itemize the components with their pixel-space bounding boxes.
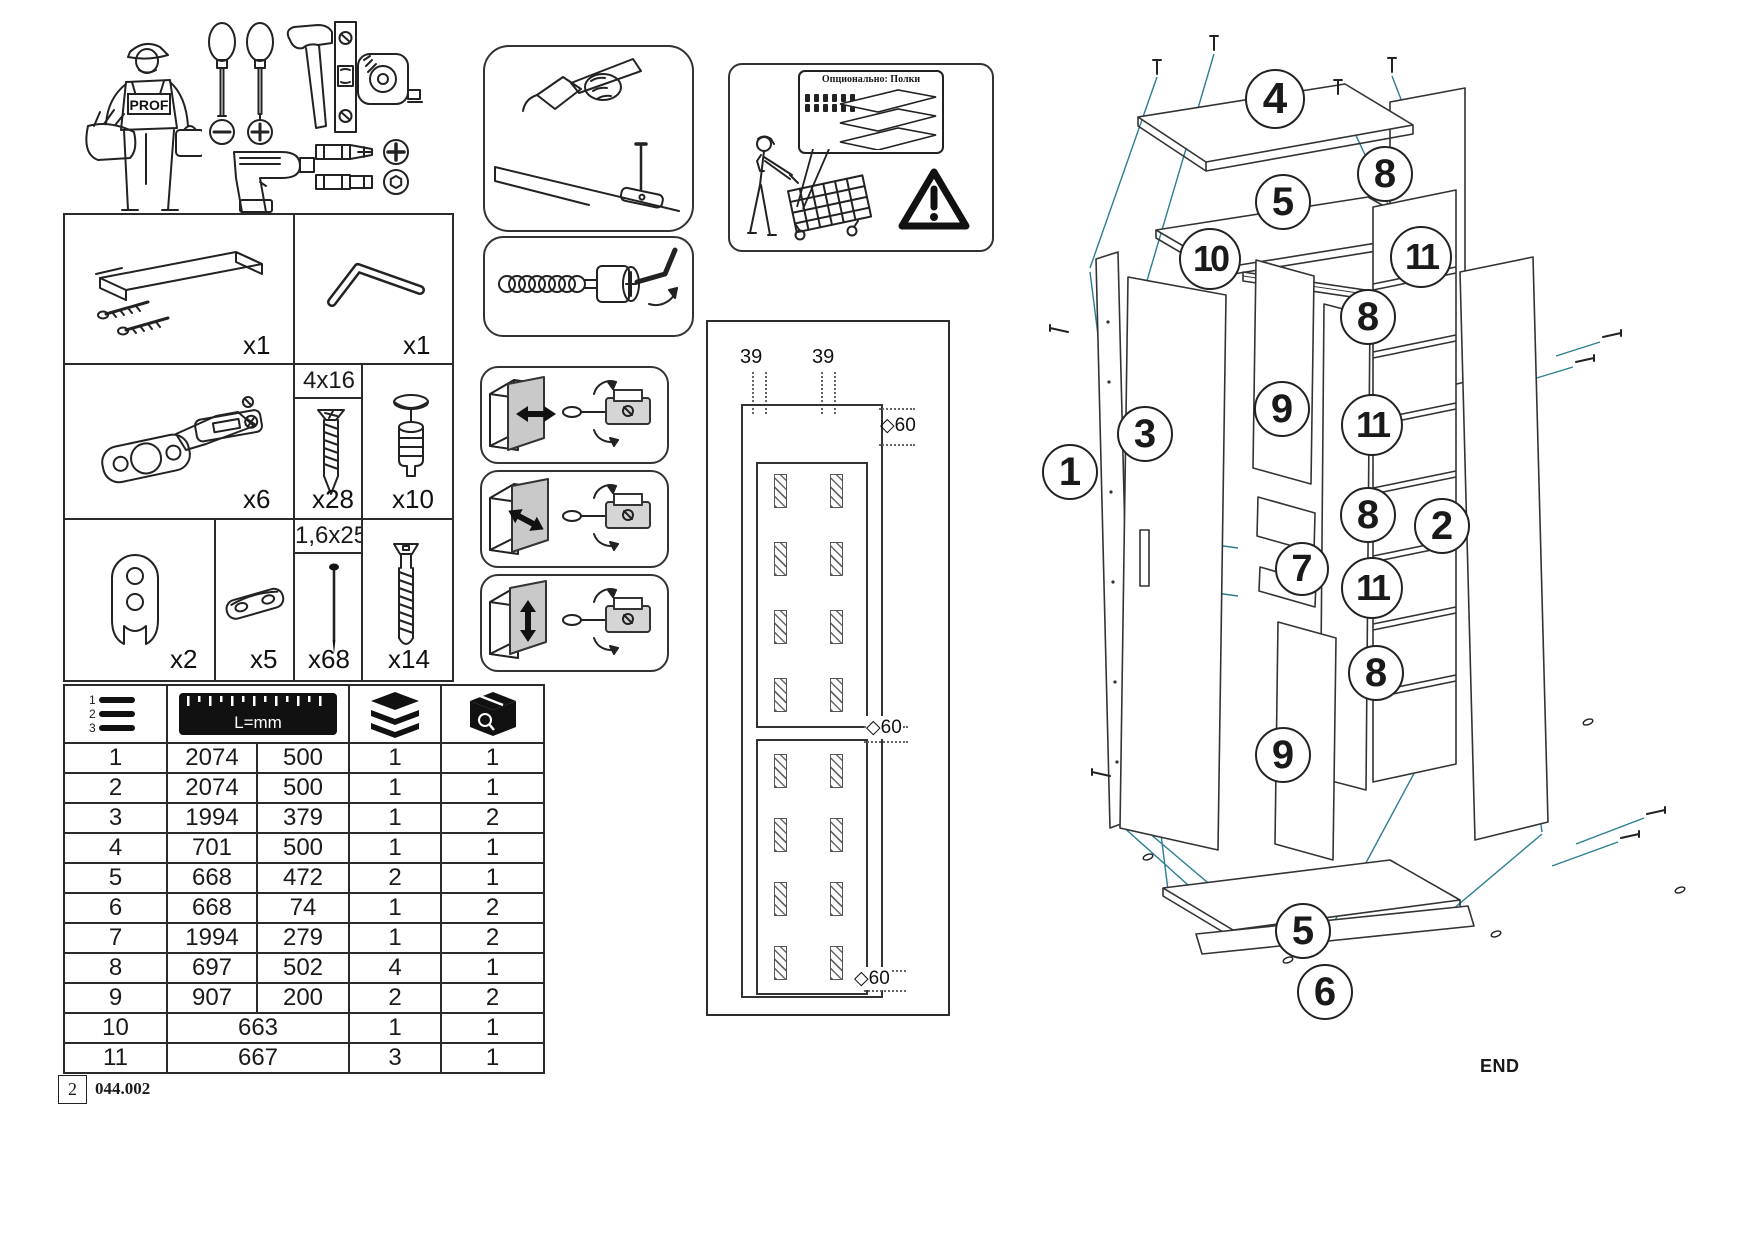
allen-key-qty: x1: [403, 330, 430, 361]
layers-icon: [369, 690, 421, 738]
table-row: 990720022: [64, 983, 544, 1013]
dim-39-right: 39: [812, 346, 834, 369]
callout-part-11: 11: [1341, 394, 1403, 456]
hinge-adjust-vertical-diagram: [480, 574, 669, 672]
hanger-bracket-icon: [96, 544, 176, 662]
document-code: 044.002: [95, 1079, 150, 1099]
table-row: 869750241: [64, 953, 544, 983]
exploded-wardrobe-view: 4 8 5 10 11 8 9 3 11 1 8 2 7 11 8 9 5 6: [1028, 22, 1738, 1032]
svg-text:PROF: PROF: [130, 97, 169, 113]
cam-assembly-diagram: [483, 236, 694, 337]
item-number-header: 1 2 3: [64, 685, 167, 743]
callout-part-5: 5: [1255, 174, 1311, 230]
panel-lower-section: [756, 739, 868, 995]
callout-part-11: 11: [1390, 226, 1452, 288]
callout-part-8: 8: [1340, 289, 1396, 345]
cam-qty: x10: [392, 484, 434, 515]
left-door: [1120, 277, 1226, 850]
callout-part-9: 9: [1254, 381, 1310, 437]
shopper-with-cart: [734, 131, 902, 245]
door-handle: [1140, 530, 1149, 586]
nail-size-label: 1,6x25: [295, 520, 363, 554]
table-header-row: 1 2 3: [64, 685, 544, 743]
callout-part-10: 10: [1179, 228, 1241, 290]
screw-qty: x28: [312, 484, 354, 515]
confirmat-qty: x14: [388, 644, 430, 675]
handle-qty: x1: [243, 330, 270, 361]
callout-part-9: 9: [1255, 727, 1311, 783]
hanger-qty: x2: [170, 644, 197, 675]
callout-part-7: 7: [1275, 542, 1329, 596]
package-icon: [468, 690, 518, 738]
table-row: 3199437912: [64, 803, 544, 833]
page-number: 2: [68, 1079, 77, 1100]
layers-header: [349, 685, 441, 743]
drilling-template-diagram: 39 39 ◇60 ◇60 ◇60: [706, 320, 950, 1016]
optional-shelves-box: Опционально: Полки: [728, 63, 994, 252]
callout-part-2: 2: [1414, 498, 1470, 554]
callout-part-8: 8: [1357, 146, 1413, 202]
right-side-panel: [1460, 257, 1548, 840]
dim-60-top: ◇60: [880, 414, 916, 437]
screw-size-label: 4x16: [295, 365, 363, 399]
page-number-box: 2: [58, 1075, 87, 1104]
assembly-instruction-sheet: PROF PROF: [0, 0, 1754, 1241]
table-row: 470150011: [64, 833, 544, 863]
hammer-icon: [276, 18, 336, 134]
package-header: [441, 685, 544, 743]
hinge-adjust-horizontal-diagram: [480, 366, 669, 464]
clip-qty: x5: [250, 644, 277, 675]
allen-key-icon: [320, 248, 432, 320]
hex-bit-icon: [314, 170, 378, 194]
hinge-adjust-depth-diagram: [480, 470, 669, 568]
warning-triangle-icon: [896, 165, 972, 235]
hammering-diagram: [483, 45, 694, 232]
parts-dimensions-table: 1 2 3: [63, 684, 545, 1074]
length-header: L=mm: [167, 685, 349, 743]
callout-part-4: 4: [1245, 69, 1305, 129]
phillips-bit-icon: [314, 140, 378, 164]
table-row: 66687412: [64, 893, 544, 923]
rod-clip-icon: [220, 574, 292, 634]
table-row: 566847221: [64, 863, 544, 893]
dim-60-mid: ◇60: [866, 716, 902, 739]
item-number-icon: 1 2 3: [67, 695, 164, 733]
callout-part-6: 6: [1297, 964, 1353, 1020]
ruler-label: L=mm: [179, 713, 337, 733]
dim-39-left: 39: [740, 346, 762, 369]
callout-part-1: 1: [1042, 444, 1098, 500]
callout-part-3: 3: [1117, 406, 1173, 462]
nail-qty: x68: [308, 644, 350, 675]
drill-icon: [224, 126, 318, 218]
callout-part-8: 8: [1348, 645, 1404, 701]
phillips-symbol-icon: [382, 138, 410, 166]
callout-part-11: 11: [1341, 557, 1403, 619]
dim-60-bottom: ◇60: [854, 967, 890, 990]
callout-part-5: 5: [1275, 903, 1331, 959]
worker-figure: PROF PROF: [80, 34, 202, 218]
hinge-qty: x6: [243, 484, 270, 515]
handle-icon: [86, 238, 276, 336]
table-row: 2207450011: [64, 773, 544, 803]
optional-title: Опционально: Полки: [800, 74, 942, 85]
hex-symbol-icon: [382, 168, 410, 196]
table-row: 1066311: [64, 1013, 544, 1043]
table-row: 1207450011: [64, 743, 544, 773]
callout-part-8: 8: [1340, 487, 1396, 543]
middle-panel-upper: [1253, 260, 1314, 484]
end-label: END: [1480, 1056, 1520, 1077]
panel-upper-section: [756, 462, 868, 728]
table-row: 7199427912: [64, 923, 544, 953]
tape-measure-icon: [356, 50, 424, 110]
ruler-icon: L=mm: [179, 693, 337, 735]
table-row: 1166731: [64, 1043, 544, 1073]
